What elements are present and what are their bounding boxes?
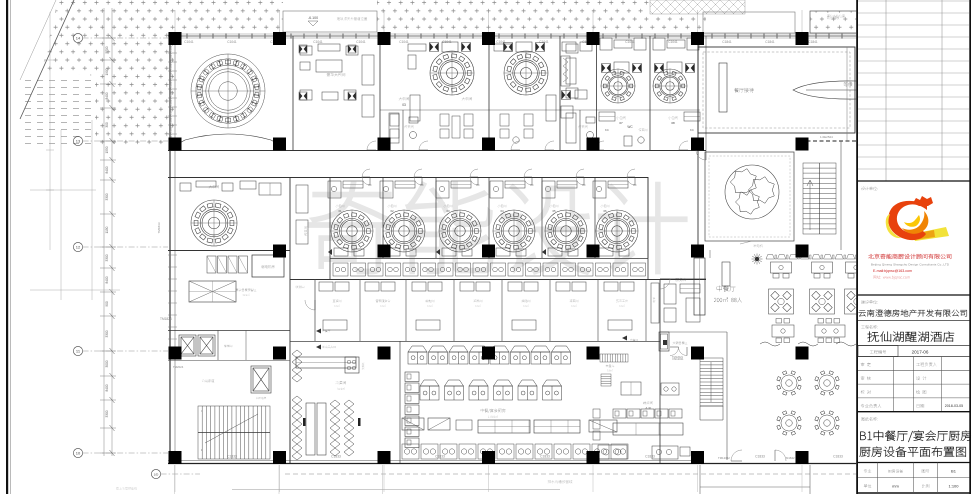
svg-text:1900: 1900: [105, 68, 109, 75]
svg-text:10: 10: [76, 451, 81, 456]
svg-text:M1842: M1842: [786, 456, 795, 460]
svg-text:14: 14: [76, 36, 81, 41]
svg-text:FM12021: FM12021: [673, 357, 685, 361]
svg-text:01: 01: [338, 209, 342, 213]
svg-text:C1041: C1041: [184, 40, 194, 44]
svg-text:2018-03-05: 2018-03-05: [945, 404, 963, 408]
svg-text:C1841: C1841: [169, 80, 173, 88]
svg-text:C1041: C1041: [313, 40, 323, 44]
svg-text:13: 13: [76, 139, 81, 144]
svg-text:3000: 3000: [105, 360, 109, 367]
svg-text:C1041: C1041: [496, 40, 506, 44]
svg-text:C1841: C1841: [169, 116, 173, 124]
svg-text:C1841: C1841: [722, 40, 732, 44]
svg-text:C1841: C1841: [808, 40, 818, 44]
svg-text:TM1833: TM1833: [157, 222, 161, 233]
svg-text:C1833: C1833: [540, 455, 550, 459]
svg-text:300: 300: [105, 122, 109, 128]
svg-text:-6.100: -6.100: [308, 16, 318, 20]
svg-text:B1: B1: [951, 469, 957, 474]
svg-text:C1841: C1841: [169, 107, 173, 115]
svg-text:C1041: C1041: [227, 40, 237, 44]
svg-text:C1841: C1841: [169, 53, 173, 61]
svg-text:mm: mm: [892, 484, 899, 489]
svg-text:08: 08: [671, 121, 675, 125]
svg-text:E-mail:bjqnsc@163.com: E-mail:bjqnsc@163.com: [873, 269, 912, 273]
svg-text:-6.30: -6.30: [645, 406, 652, 410]
svg-text:WC: WC: [627, 125, 633, 129]
svg-text:TM2024: TM2024: [173, 365, 184, 369]
svg-text:C1841: C1841: [169, 71, 173, 79]
svg-text:8400: 8400: [105, 276, 109, 283]
svg-text:07: 07: [619, 121, 623, 125]
svg-text:C1041: C1041: [356, 40, 366, 44]
svg-text:C1041: C1041: [668, 40, 678, 44]
svg-text:C1841: C1841: [169, 62, 173, 70]
svg-text:C1833: C1833: [833, 455, 843, 459]
svg-text:900: 900: [105, 301, 109, 307]
svg-text:3300: 3300: [105, 193, 109, 200]
svg-text:3300: 3300: [105, 330, 109, 337]
svg-text:3300: 3300: [105, 410, 109, 417]
svg-text:1550: 1550: [105, 146, 109, 153]
svg-text:1:100: 1:100: [948, 484, 959, 489]
svg-text:8400: 8400: [105, 92, 109, 99]
svg-text:C1833: C1833: [755, 455, 765, 459]
svg-text:8400: 8400: [105, 384, 109, 391]
svg-text:12: 12: [76, 245, 81, 250]
svg-text:TM1824: TM1824: [160, 317, 172, 321]
svg-text:3300: 3300: [105, 254, 109, 261]
svg-text:KC: KC: [605, 128, 609, 132]
svg-text:Beijing Qineng Shangchu Design: Beijing Qineng Shangchu Design Consultan…: [871, 263, 949, 267]
svg-text:04: 04: [500, 209, 504, 213]
svg-text:C1833: C1833: [645, 455, 655, 459]
svg-text:02: 02: [390, 209, 394, 213]
svg-text:C1041: C1041: [399, 40, 409, 44]
svg-text:C1841: C1841: [169, 98, 173, 106]
svg-text:5700: 5700: [105, 46, 109, 53]
svg-text:KC: KC: [690, 128, 694, 132]
svg-text:C1841: C1841: [169, 89, 173, 97]
svg-text:05: 05: [552, 209, 556, 213]
svg-text:C1041: C1041: [625, 40, 635, 44]
svg-text:TM12342: TM12342: [718, 456, 730, 460]
svg-text:8400: 8400: [105, 166, 109, 173]
svg-text:03: 03: [446, 209, 450, 213]
svg-text:06: 06: [603, 209, 607, 213]
svg-text:1150: 1150: [105, 226, 109, 233]
svg-text:2017-06: 2017-06: [912, 350, 929, 355]
svg-text:1.0E2524: 1.0E2524: [820, 135, 833, 139]
svg-text:C1841: C1841: [765, 40, 775, 44]
svg-text:03: 03: [402, 103, 406, 107]
svg-text:C1841: C1841: [169, 125, 173, 133]
svg-text:1/D: 1/D: [154, 473, 160, 477]
